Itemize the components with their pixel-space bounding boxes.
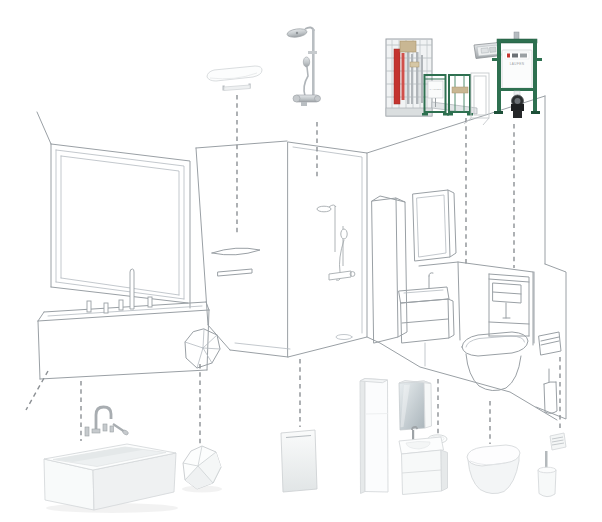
product-toilet[interactable]: [467, 445, 520, 494]
connector-dashed-line: [26, 371, 48, 410]
product-wall-shelf[interactable]: [207, 66, 262, 91]
basin-faucet-icon: [412, 430, 414, 440]
towel-rail-sketch: [218, 269, 252, 276]
shelf-sketch: [212, 248, 260, 255]
product-roll-holder[interactable]: [550, 433, 566, 450]
toilet-frame-sketch: [489, 274, 529, 336]
svg-text:LAUFEN: LAUFEN: [430, 88, 441, 90]
stool-sketch: [185, 329, 220, 368]
product-toilet-brush[interactable]: [538, 451, 556, 497]
cabinets-sketch: [372, 190, 456, 343]
mid-wall-sketch: [196, 141, 288, 357]
shower-head-icon: [287, 28, 308, 39]
bathtub-platform-sketch: [38, 269, 209, 379]
shower-column-sketch: [317, 205, 355, 280]
product-bathtub[interactable]: [44, 444, 178, 513]
product-mirror-cabinet[interactable]: [399, 381, 432, 431]
bathroom-planner-canvas: LAUFEN LAUFEN: [0, 0, 602, 522]
product-installation-system[interactable]: LAUFEN: [386, 39, 489, 125]
supply-pipe-red-thin: [402, 53, 405, 100]
product-tall-cabinet[interactable]: [360, 379, 388, 494]
product-stool[interactable]: [182, 446, 222, 493]
brand-label: LAUFEN: [510, 62, 525, 66]
flush-button-large: [481, 48, 489, 53]
ghost-frame: [464, 73, 489, 125]
window-wall-sketch: [37, 112, 190, 308]
product-shower-column[interactable]: [287, 27, 321, 106]
product-bath-mixer[interactable]: [85, 407, 129, 436]
room-wireframe: [37, 96, 566, 420]
waste-pipe: [513, 110, 522, 118]
product-wc-frame[interactable]: LAUFEN: [492, 32, 542, 118]
flush-button-small: [490, 47, 497, 52]
product-vanity[interactable]: [399, 427, 448, 495]
product-flush-plate[interactable]: [474, 43, 501, 59]
wall-accessories-sketch: [539, 332, 561, 413]
hand-shower-icon: [303, 57, 309, 67]
product-shower-tray[interactable]: [281, 430, 317, 492]
supply-pipe-red: [394, 49, 400, 104]
